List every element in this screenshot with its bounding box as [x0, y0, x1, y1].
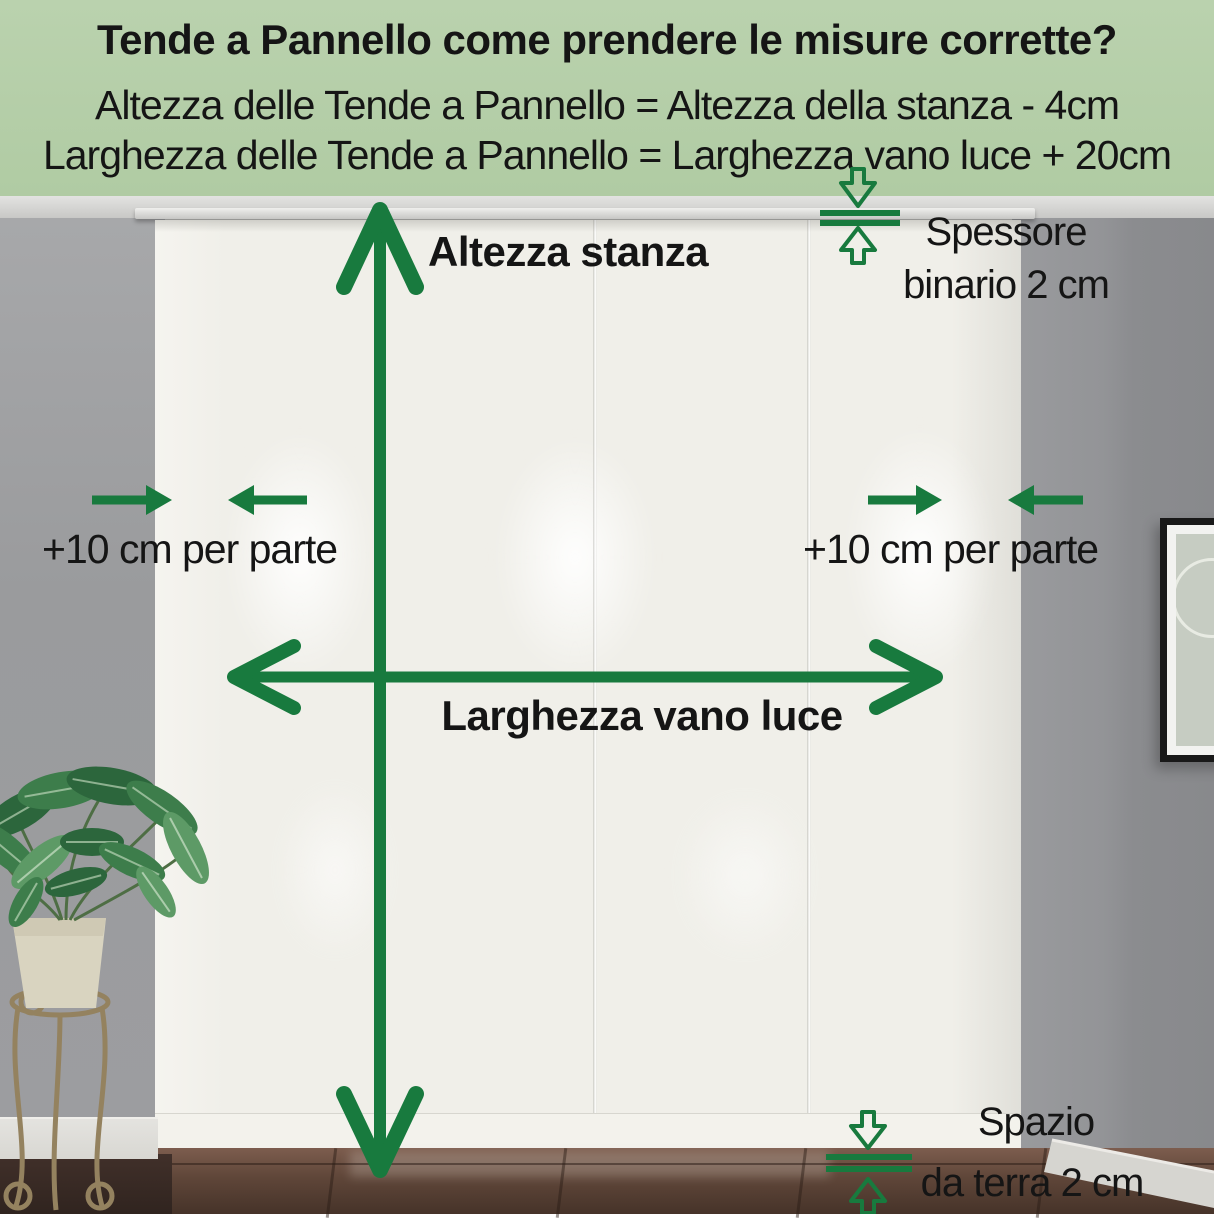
side-allowance-label-right: +10 cm per parte: [803, 526, 1098, 573]
side-allowance-label-left: +10 cm per parte: [42, 526, 337, 573]
room-height-label: Altezza stanza: [428, 228, 708, 276]
page-title: Tende a Pannello come prendere le misure…: [0, 16, 1214, 64]
floor-gap-label-2: da terra 2 cm: [921, 1161, 1144, 1206]
width-formula: Larghezza delle Tende a Pannello = Largh…: [0, 132, 1214, 179]
framed-art: [1176, 534, 1214, 746]
track-thickness-label-1: Spessore: [926, 210, 1087, 255]
plant-leaves: [0, 760, 218, 932]
potted-plant: [0, 750, 220, 1220]
floor-gap-label-1: Spazio: [978, 1100, 1094, 1145]
picture-frame: [1160, 518, 1214, 762]
track-thickness-label-2: binario 2 cm: [903, 263, 1109, 308]
header-banner: Tende a Pannello come prendere le misure…: [0, 0, 1214, 196]
plant-pot: [12, 918, 106, 1008]
plant-stand: [6, 989, 112, 1210]
height-formula: Altezza delle Tende a Pannello = Altezza…: [0, 82, 1214, 129]
opening-width-label: Larghezza vano luce: [441, 692, 842, 740]
